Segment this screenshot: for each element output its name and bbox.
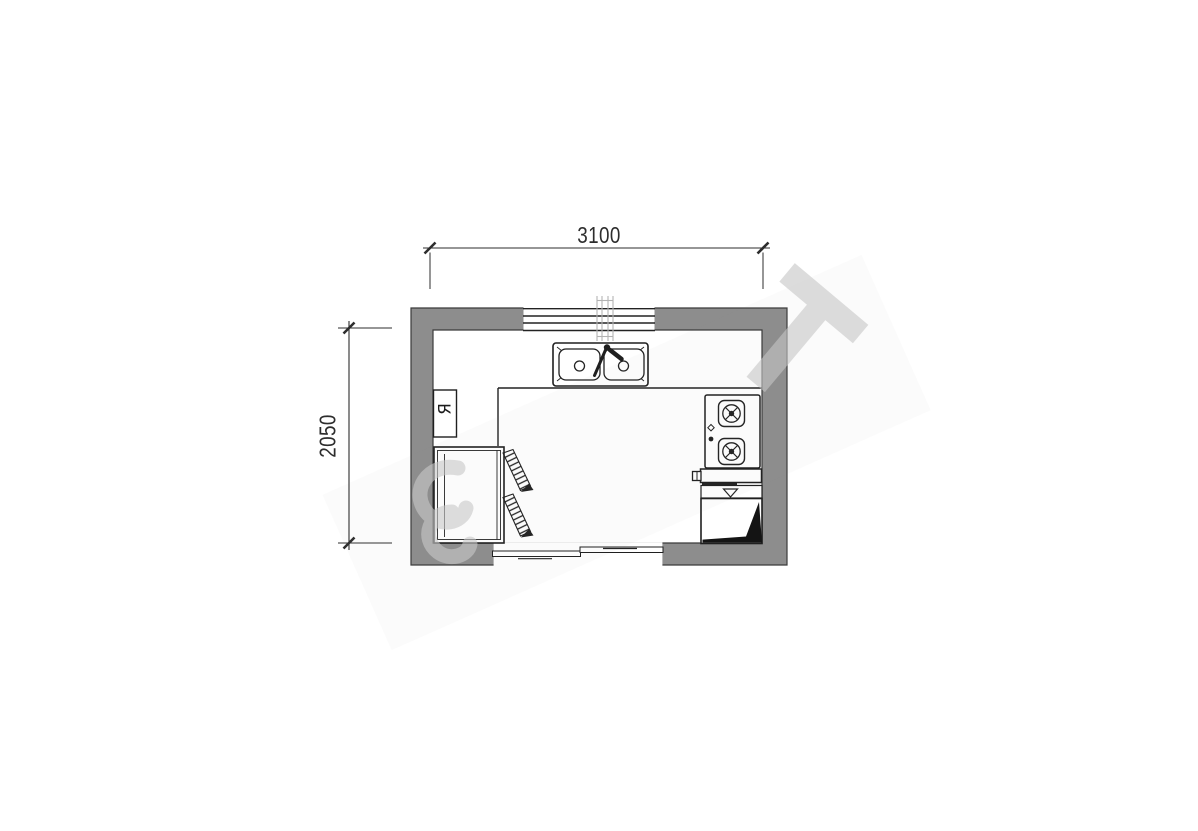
window-opening — [524, 307, 655, 331]
floor-plan-drawing: Я — [0, 0, 1198, 831]
appliance-marker-label: Я — [436, 403, 456, 415]
dimension-top-label: 3100 — [577, 223, 621, 248]
dimension-left-label: 2050 — [316, 414, 341, 458]
dimension-top: 3100 — [423, 223, 770, 289]
appliance-marker-box: Я — [434, 390, 457, 437]
